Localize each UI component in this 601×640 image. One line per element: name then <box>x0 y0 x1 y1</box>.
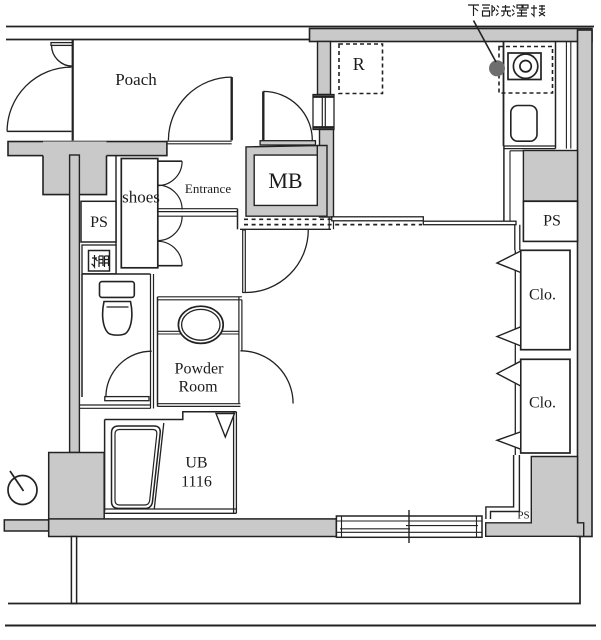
svg-text:PS: PS <box>517 510 529 522</box>
svg-text:Clo.: Clo. <box>529 287 556 304</box>
svg-text:1116: 1116 <box>181 474 212 491</box>
svg-text:Clo.: Clo. <box>529 395 556 412</box>
svg-text:UB: UB <box>185 455 207 472</box>
svg-text:MB: MB <box>268 168 302 193</box>
svg-text:PS: PS <box>543 213 561 230</box>
svg-text:Poach: Poach <box>115 70 157 89</box>
svg-text:R: R <box>353 54 365 74</box>
svg-text:PS: PS <box>90 214 108 231</box>
svg-text:Entrance: Entrance <box>185 181 231 196</box>
svg-text:Powder: Powder <box>175 361 225 378</box>
svg-text:Room: Room <box>178 379 218 396</box>
svg-text:shoes: shoes <box>122 188 160 207</box>
